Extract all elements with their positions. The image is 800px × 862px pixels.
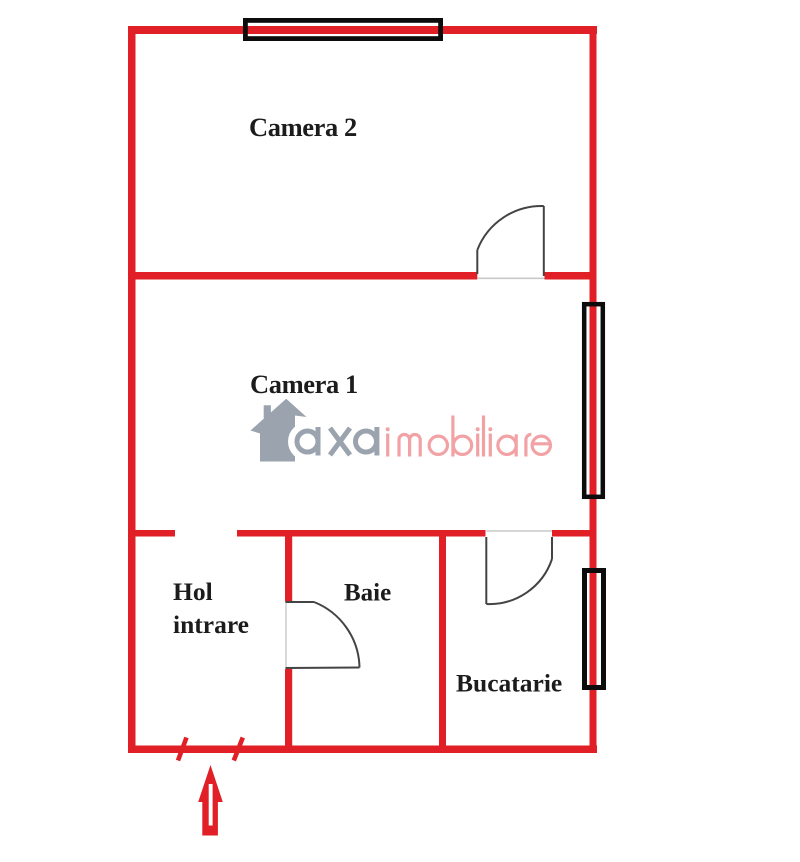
svg-text:Camera 2: Camera 2 — [249, 112, 357, 142]
svg-text:Camera 1: Camera 1 — [250, 369, 358, 399]
svg-text:Bucatarie: Bucatarie — [456, 669, 562, 698]
svg-text:intrare: intrare — [173, 610, 249, 639]
svg-text:Baie: Baie — [344, 580, 391, 607]
svg-text:Hol: Hol — [173, 577, 213, 606]
